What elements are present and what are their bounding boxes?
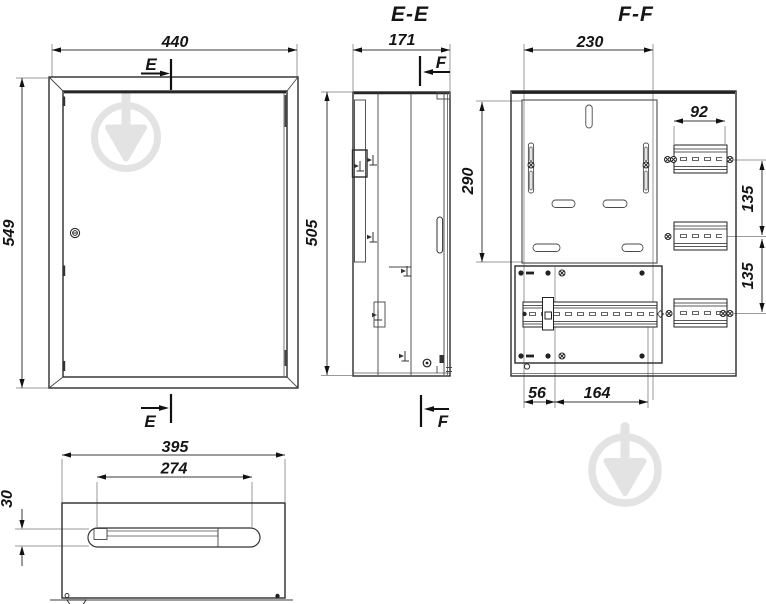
section-cut-marker-e-top: E: [141, 55, 171, 90]
dim-ff-rail-width: 92: [690, 104, 708, 121]
section-cut-marker-f-top: F: [420, 53, 450, 86]
cut-letter-f-bottom: F: [438, 412, 449, 431]
cut-letter-e-bottom: E: [144, 412, 156, 431]
section-cut-marker-e-bottom: E: [141, 394, 171, 431]
drawing-canvas: 440 549 E E: [0, 0, 766, 604]
front-view: 440 549 E E: [1, 34, 298, 431]
watermark-logo: [592, 422, 658, 503]
dim-ff-offset: 56: [528, 385, 546, 402]
dim-ff-plate-width: 230: [576, 34, 604, 51]
door-lock: [70, 228, 79, 237]
dim-bottom-width: 395: [162, 439, 190, 456]
section-view-ff: F-F 230 290: [460, 3, 766, 408]
bottom-view: 395 274 30: [0, 439, 293, 604]
dim-bottom-slot-height: 30: [0, 490, 16, 508]
dim-ff-plate-height: 290: [460, 168, 477, 196]
dim-bottom-slot-width: 274: [160, 461, 188, 478]
section-cut-marker-f-bottom: F: [421, 395, 449, 431]
watermark-logo: [95, 90, 158, 169]
din-rail-right-top: [665, 145, 734, 173]
din-rail-right-middle: [665, 222, 727, 250]
din-rail-right-bottom: [666, 299, 733, 327]
dim-ff-spacing-lower: 135: [740, 262, 757, 290]
dim-ee-height: 505: [304, 219, 321, 247]
dim-ff-rail-length: 164: [584, 385, 611, 402]
dim-ee-width: 171: [389, 32, 416, 49]
cut-letter-f-top: F: [436, 53, 447, 72]
dim-front-height: 549: [1, 220, 18, 247]
section-title-ff: F-F: [618, 3, 654, 26]
section-title-ee: E-E: [391, 3, 429, 26]
din-rail-horizontal: [522, 298, 663, 331]
dim-front-width: 440: [161, 34, 189, 51]
dim-ff-spacing-upper: 135: [740, 185, 757, 213]
section-view-ee: E-E 171 505: [304, 3, 452, 431]
cut-letter-e-top: E: [145, 55, 157, 74]
